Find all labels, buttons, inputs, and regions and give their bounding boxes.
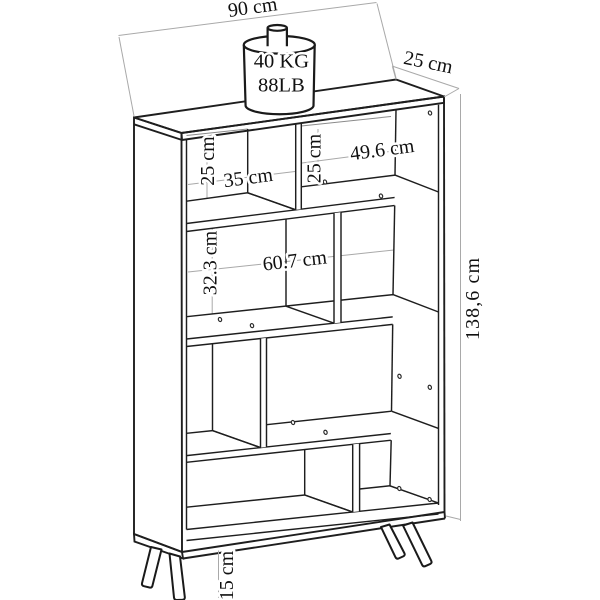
- svg-text:32.3 cm: 32.3 cm: [200, 230, 222, 295]
- svg-text:25 cm: 25 cm: [197, 136, 219, 186]
- svg-text:40 KG: 40 KG: [254, 51, 309, 73]
- svg-text:15 cm: 15 cm: [216, 550, 238, 600]
- svg-text:25 cm: 25 cm: [304, 133, 326, 183]
- svg-text:138,6 cm: 138,6 cm: [462, 257, 484, 340]
- svg-text:88LB: 88LB: [258, 74, 305, 96]
